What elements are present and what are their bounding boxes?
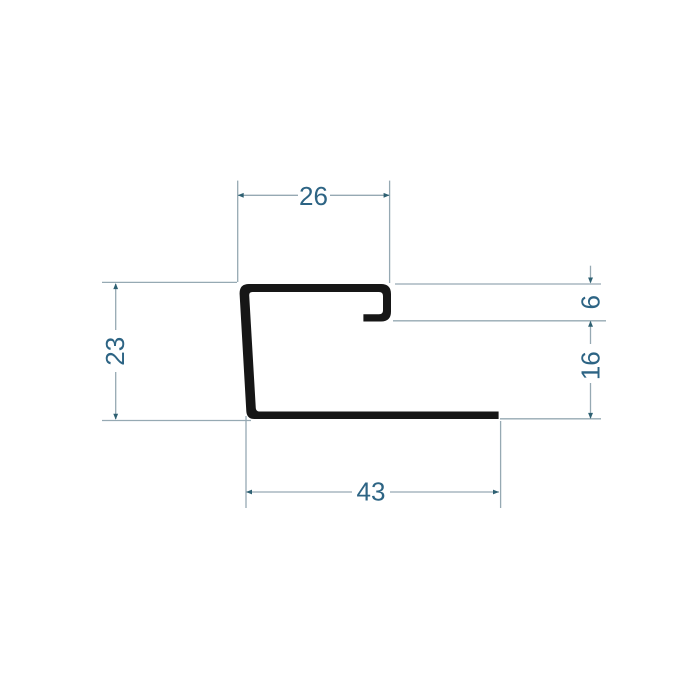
svg-text:23: 23: [100, 337, 130, 366]
svg-text:43: 43: [357, 477, 386, 507]
svg-text:16: 16: [576, 351, 606, 380]
svg-text:6: 6: [576, 295, 606, 309]
svg-text:26: 26: [299, 181, 328, 211]
